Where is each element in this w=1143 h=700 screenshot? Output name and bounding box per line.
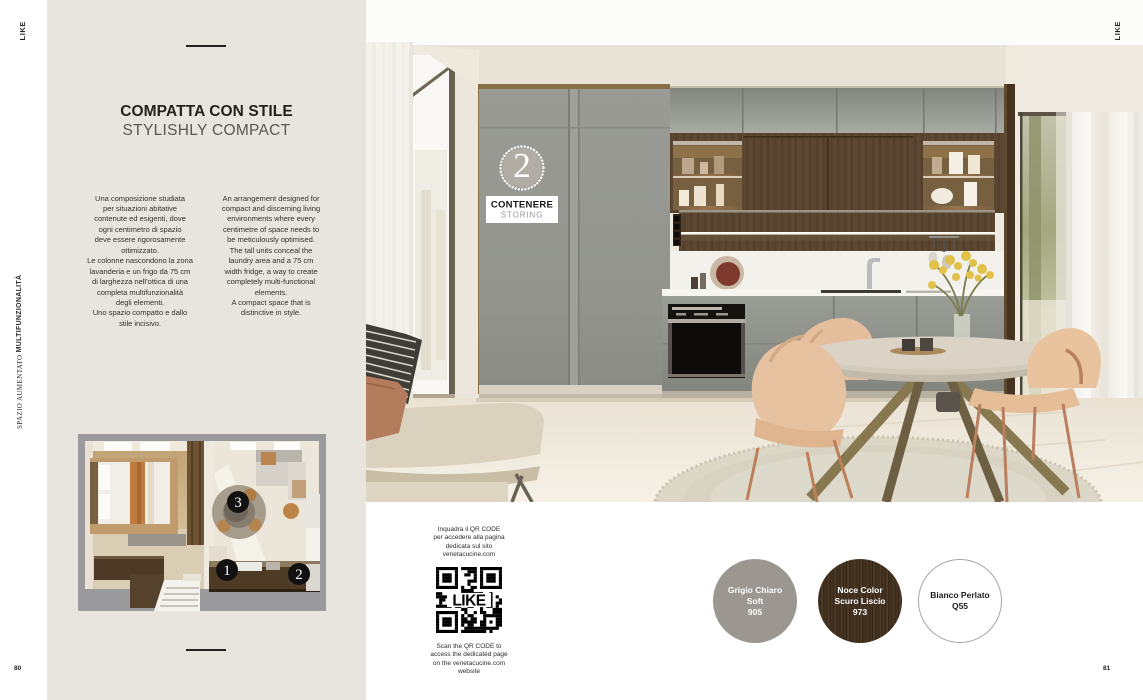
- svg-text:1: 1: [223, 563, 231, 579]
- svg-text:LIKE: LIKE: [452, 593, 485, 610]
- svg-text:3: 3: [234, 495, 242, 511]
- svg-text:2: 2: [513, 146, 531, 185]
- svg-text:STORING: STORING: [501, 211, 544, 220]
- svg-text:CONTENERE: CONTENERE: [491, 200, 553, 211]
- svg-text:2: 2: [295, 567, 303, 583]
